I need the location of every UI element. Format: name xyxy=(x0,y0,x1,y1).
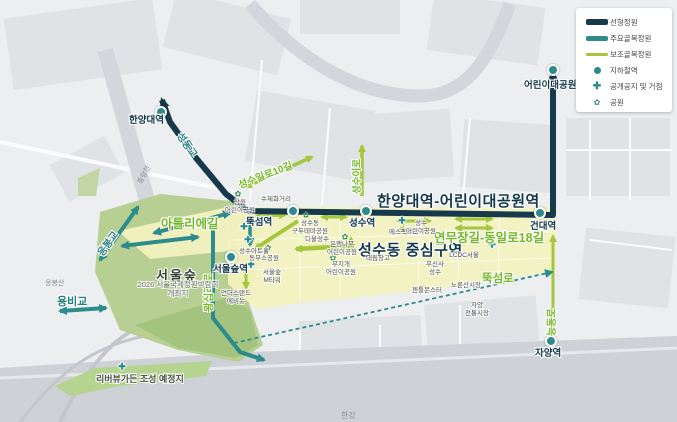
station-label-jayang: 자양역 xyxy=(535,348,561,359)
major-alley-garden-swatch xyxy=(584,36,610,41)
park-icon: ✿ xyxy=(584,98,610,107)
poi-musinsa-seongsu: 무신사 성수 xyxy=(420,261,450,276)
yongbi-bridge-label: 용비교 xyxy=(57,296,87,309)
poi-lcdc-seoul: LCDC서울 xyxy=(446,252,482,260)
poi-understand-avenue: 언더스탠드 에비뉴 xyxy=(216,290,256,305)
subway-station-icon xyxy=(584,67,610,74)
station-label-ttukseom: 뚝섬역 xyxy=(246,217,272,228)
atelier-road-label: 아틀리에길 xyxy=(161,217,219,232)
station-label-seoulsup: 서울숲역 xyxy=(213,264,248,275)
yeonmu-corridor-label: 연무장길-동일로18길 xyxy=(434,231,544,246)
legend-label: 선형정원 xyxy=(610,17,638,28)
legend-row-station: 지하철역 xyxy=(584,62,672,78)
open-space-plus-icon: ✚ xyxy=(584,81,610,92)
ttukseom-ro-label: 뚝섬로 xyxy=(482,273,514,287)
poi-daelim-warehouse: 대림창고 xyxy=(360,255,396,263)
poi-eunhaengnamu-park: 은행나무 어린이공원 xyxy=(322,241,362,256)
poi-shoe-theme-park: 성수동 구두테마공원 xyxy=(287,220,333,235)
open-space-plus-icon: ✚ xyxy=(244,235,252,246)
station-dot-ttukseom xyxy=(287,205,299,217)
legend-row-park: ✿ 공원 xyxy=(584,94,672,110)
eungbongsan-label: 응봉산 xyxy=(45,280,64,288)
hangang-label: 한강 xyxy=(341,411,356,420)
legend-row-major: 주요골목정원 xyxy=(584,30,672,46)
poi-gentle-monster: 젠틀몬스터 xyxy=(407,287,447,295)
legend-row-openspace: ✚ 공개공지 및 거점 xyxy=(584,78,672,94)
poi-dongbu-park: 동부소공원 xyxy=(244,255,284,263)
poi-jayang-market: 자양 전통시장 xyxy=(459,302,495,317)
poi-seoulsup-m-tower: 서울숲 M타워 xyxy=(255,269,289,284)
open-space-plus-icon: ✚ xyxy=(118,362,126,373)
legend-row-linear: 선형정원 xyxy=(584,14,672,30)
legend-label: 공원 xyxy=(610,97,624,108)
station-dot-jayang xyxy=(545,335,557,347)
main-corridor-title: 한양대역-어린이대공원역 xyxy=(377,193,540,211)
legend-label: 지하철역 xyxy=(610,65,638,76)
seongsu-i-ro-label: 성수이로 xyxy=(352,159,363,194)
poi-norunsan-market: 노룬산시장 xyxy=(446,282,486,290)
station-label-hanyang: 한양대역 xyxy=(129,115,164,126)
park-icon: ✿ xyxy=(303,211,310,220)
station-dot-seongsu xyxy=(360,205,372,217)
garden-plan-map: ✚ ✚ ✚ ✚ ✚ ✚ ✿ ✿ ✿ ✿ ✿ 한양대역 뚝섬역 성수역 건대역 어… xyxy=(0,0,677,422)
legend-row-minor: 보조골목정원 xyxy=(584,46,672,62)
linear-garden-swatch xyxy=(584,19,610,25)
poi-seongsu-childrens-park: 성수 어린이공원 xyxy=(403,220,439,235)
legend: 선형정원 주요골목정원 보조골목정원 지하철역 ✚ 공개공지 및 거점 ✿ 공원 xyxy=(576,8,672,112)
legend-label: 공개공지 및 거점 xyxy=(610,81,662,92)
legend-label: 주요골목정원 xyxy=(610,33,651,44)
minor-alley-garden-swatch xyxy=(584,53,610,56)
legend-label: 보조골목정원 xyxy=(610,49,651,60)
poi-sangwon-childrens-park: 상원 어린이공원 xyxy=(220,199,260,214)
riverview-garden-label: 리버뷰가든 조성 예정지 xyxy=(96,374,184,385)
poi-mujigae-park: 무지개 어린이공원 xyxy=(321,261,361,276)
neungdong-ro-label: 능동로 xyxy=(547,308,559,336)
station-dot-childrens-park xyxy=(547,64,559,76)
poi-sujehwa-street: 수제화거리 xyxy=(256,196,296,204)
station-label-seongsu: 성수역 xyxy=(349,218,375,229)
